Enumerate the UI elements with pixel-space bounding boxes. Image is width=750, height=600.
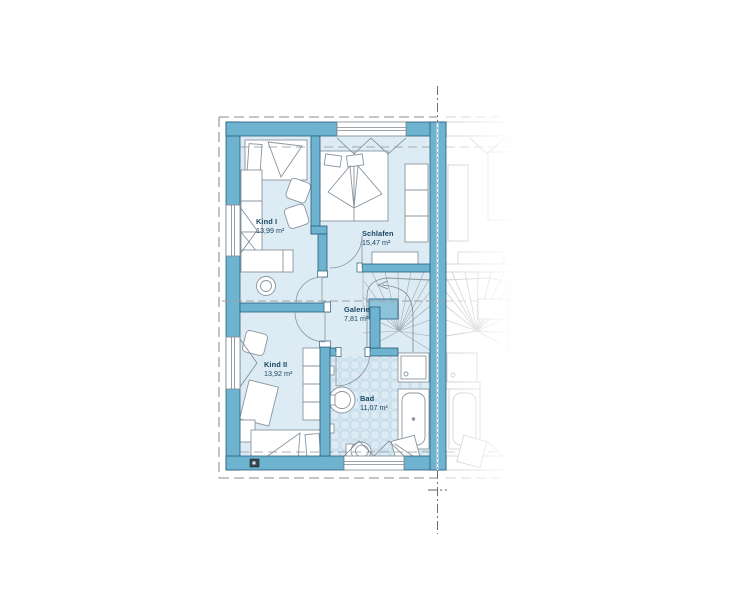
interior-wall <box>370 348 398 356</box>
lounge-chair-icon <box>242 330 269 357</box>
shower-icon <box>398 353 429 382</box>
neighbour-unit-ghost <box>446 117 564 478</box>
room-area-schlafen: 15,47 m² <box>362 238 391 247</box>
room-label-kind1: Kind I <box>256 217 277 226</box>
room-label-galerie: Galerie <box>344 305 370 314</box>
interior-wall <box>240 303 330 312</box>
room-label-kind2: Kind II <box>264 360 287 369</box>
interior-wall <box>311 136 320 234</box>
floor-plan: Kind I 13,99 m² Schlafen 15,47 m² Galeri… <box>0 0 750 600</box>
junction-box-inner <box>253 462 256 465</box>
built-in-wardrobe-icon <box>303 348 320 420</box>
exterior-wall-bottom <box>226 456 344 470</box>
ghost-stairs-icon <box>446 272 513 352</box>
room-area-kind1: 13,99 m² <box>256 226 285 235</box>
interior-wall <box>330 348 336 356</box>
room-area-kind2: 13,92 m² <box>264 369 293 378</box>
radiator-icon <box>330 424 334 433</box>
radiator-icon <box>330 366 334 375</box>
exterior-wall-left <box>226 122 240 470</box>
chair-icon <box>257 277 276 296</box>
interior-wall <box>370 307 380 348</box>
floor-plan-drawing: Kind I 13,99 m² Schlafen 15,47 m² Galeri… <box>0 0 750 600</box>
exterior-wall-top <box>226 122 337 136</box>
interior-wall <box>362 264 430 272</box>
interior-wall <box>320 347 330 456</box>
interior-wall <box>311 226 327 234</box>
ghost-shower-icon <box>447 353 477 382</box>
room-label-schlafen: Schlafen <box>362 229 394 238</box>
interior-wall <box>318 234 327 277</box>
room-area-bad: 11,07 m² <box>360 403 388 412</box>
room-area-galerie: 7,81 m² <box>344 314 369 323</box>
bench-icon <box>372 252 418 265</box>
room-label-bad: Bad <box>360 394 375 403</box>
wardrobe-icon <box>405 164 428 242</box>
double-bed-icon <box>320 151 388 221</box>
ghost-bed-icon <box>488 152 548 220</box>
sink-icon <box>329 387 355 413</box>
ghost-wardrobe-icon <box>448 165 468 241</box>
wardrobe-icon <box>241 170 262 258</box>
